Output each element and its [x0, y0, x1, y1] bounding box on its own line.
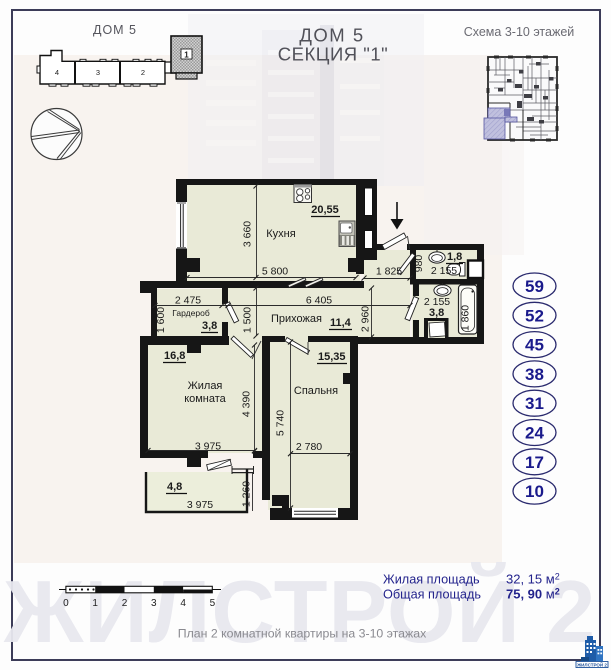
svg-text:План 2 комнатной квартиры на 3: План 2 комнатной квартиры на 3-10 этажах [178, 627, 427, 641]
svg-text:комната: комната [184, 393, 226, 405]
svg-text:52: 52 [525, 306, 544, 325]
svg-text:5: 5 [210, 598, 216, 609]
svg-text:Жилая площадь: Жилая площадь [383, 573, 480, 587]
svg-text:10: 10 [525, 482, 544, 501]
svg-text:45: 45 [525, 336, 544, 355]
svg-text:2 780: 2 780 [296, 441, 322, 453]
svg-text:ДОМ 5: ДОМ 5 [299, 25, 364, 46]
svg-text:17: 17 [525, 453, 544, 472]
svg-text:Гардероб: Гардероб [172, 308, 210, 318]
svg-text:59: 59 [525, 277, 544, 296]
svg-text:3: 3 [96, 68, 100, 77]
svg-text:2 155: 2 155 [431, 265, 457, 277]
svg-text:2: 2 [141, 68, 145, 77]
svg-text:5 800: 5 800 [262, 266, 288, 278]
svg-text:1 860: 1 860 [460, 305, 472, 331]
svg-text:3,8: 3,8 [202, 320, 217, 332]
svg-text:Общая площадь: Общая площадь [383, 588, 481, 602]
svg-text:1 260: 1 260 [241, 481, 253, 507]
svg-text:Жилая: Жилая [188, 380, 223, 392]
svg-text:2 960: 2 960 [360, 306, 372, 332]
svg-text:4 390: 4 390 [241, 391, 253, 417]
svg-text:ДОМ 5: ДОМ 5 [93, 23, 137, 37]
svg-text:1 500: 1 500 [242, 307, 254, 333]
svg-text:3: 3 [151, 598, 157, 609]
svg-text:1,8: 1,8 [447, 251, 462, 263]
svg-text:6 405: 6 405 [306, 295, 332, 307]
svg-text:16,8: 16,8 [164, 350, 185, 362]
svg-text:4: 4 [180, 598, 186, 609]
svg-text:32, 15 м2: 32, 15 м2 [506, 572, 560, 587]
svg-text:Прихожая: Прихожая [271, 313, 322, 325]
svg-text:Схема 3-10 этажей: Схема 3-10 этажей [464, 25, 575, 39]
svg-text:3,8: 3,8 [429, 307, 444, 319]
svg-text:СЕКЦИЯ "1": СЕКЦИЯ "1" [278, 44, 388, 65]
svg-text:31: 31 [525, 394, 544, 413]
svg-text:20,55: 20,55 [311, 204, 339, 216]
svg-text:75, 90 м2: 75, 90 м2 [506, 587, 560, 602]
svg-text:3 975: 3 975 [195, 441, 221, 453]
svg-text:11,4: 11,4 [330, 317, 352, 329]
svg-text:3 660: 3 660 [242, 221, 254, 247]
svg-text:4: 4 [55, 68, 59, 77]
svg-text:1 600: 1 600 [155, 307, 167, 333]
svg-text:980: 980 [413, 255, 425, 273]
svg-text:Спальня: Спальня [294, 385, 338, 397]
svg-text:ЖИЛСТРОЙ 2: ЖИЛСТРОЙ 2 [576, 660, 607, 667]
svg-text:15,35: 15,35 [318, 351, 346, 363]
svg-text:2: 2 [122, 598, 128, 609]
svg-text:38: 38 [525, 365, 544, 384]
svg-text:1 825: 1 825 [376, 266, 402, 278]
svg-text:1: 1 [92, 598, 98, 609]
svg-text:2 475: 2 475 [175, 295, 201, 307]
svg-text:5 740: 5 740 [275, 410, 287, 436]
svg-text:1: 1 [184, 51, 189, 60]
svg-text:Кухня: Кухня [266, 228, 295, 240]
svg-text:0: 0 [63, 598, 69, 609]
svg-text:24: 24 [525, 424, 544, 443]
svg-text:3 975: 3 975 [187, 499, 213, 511]
svg-text:4,8: 4,8 [167, 481, 182, 493]
